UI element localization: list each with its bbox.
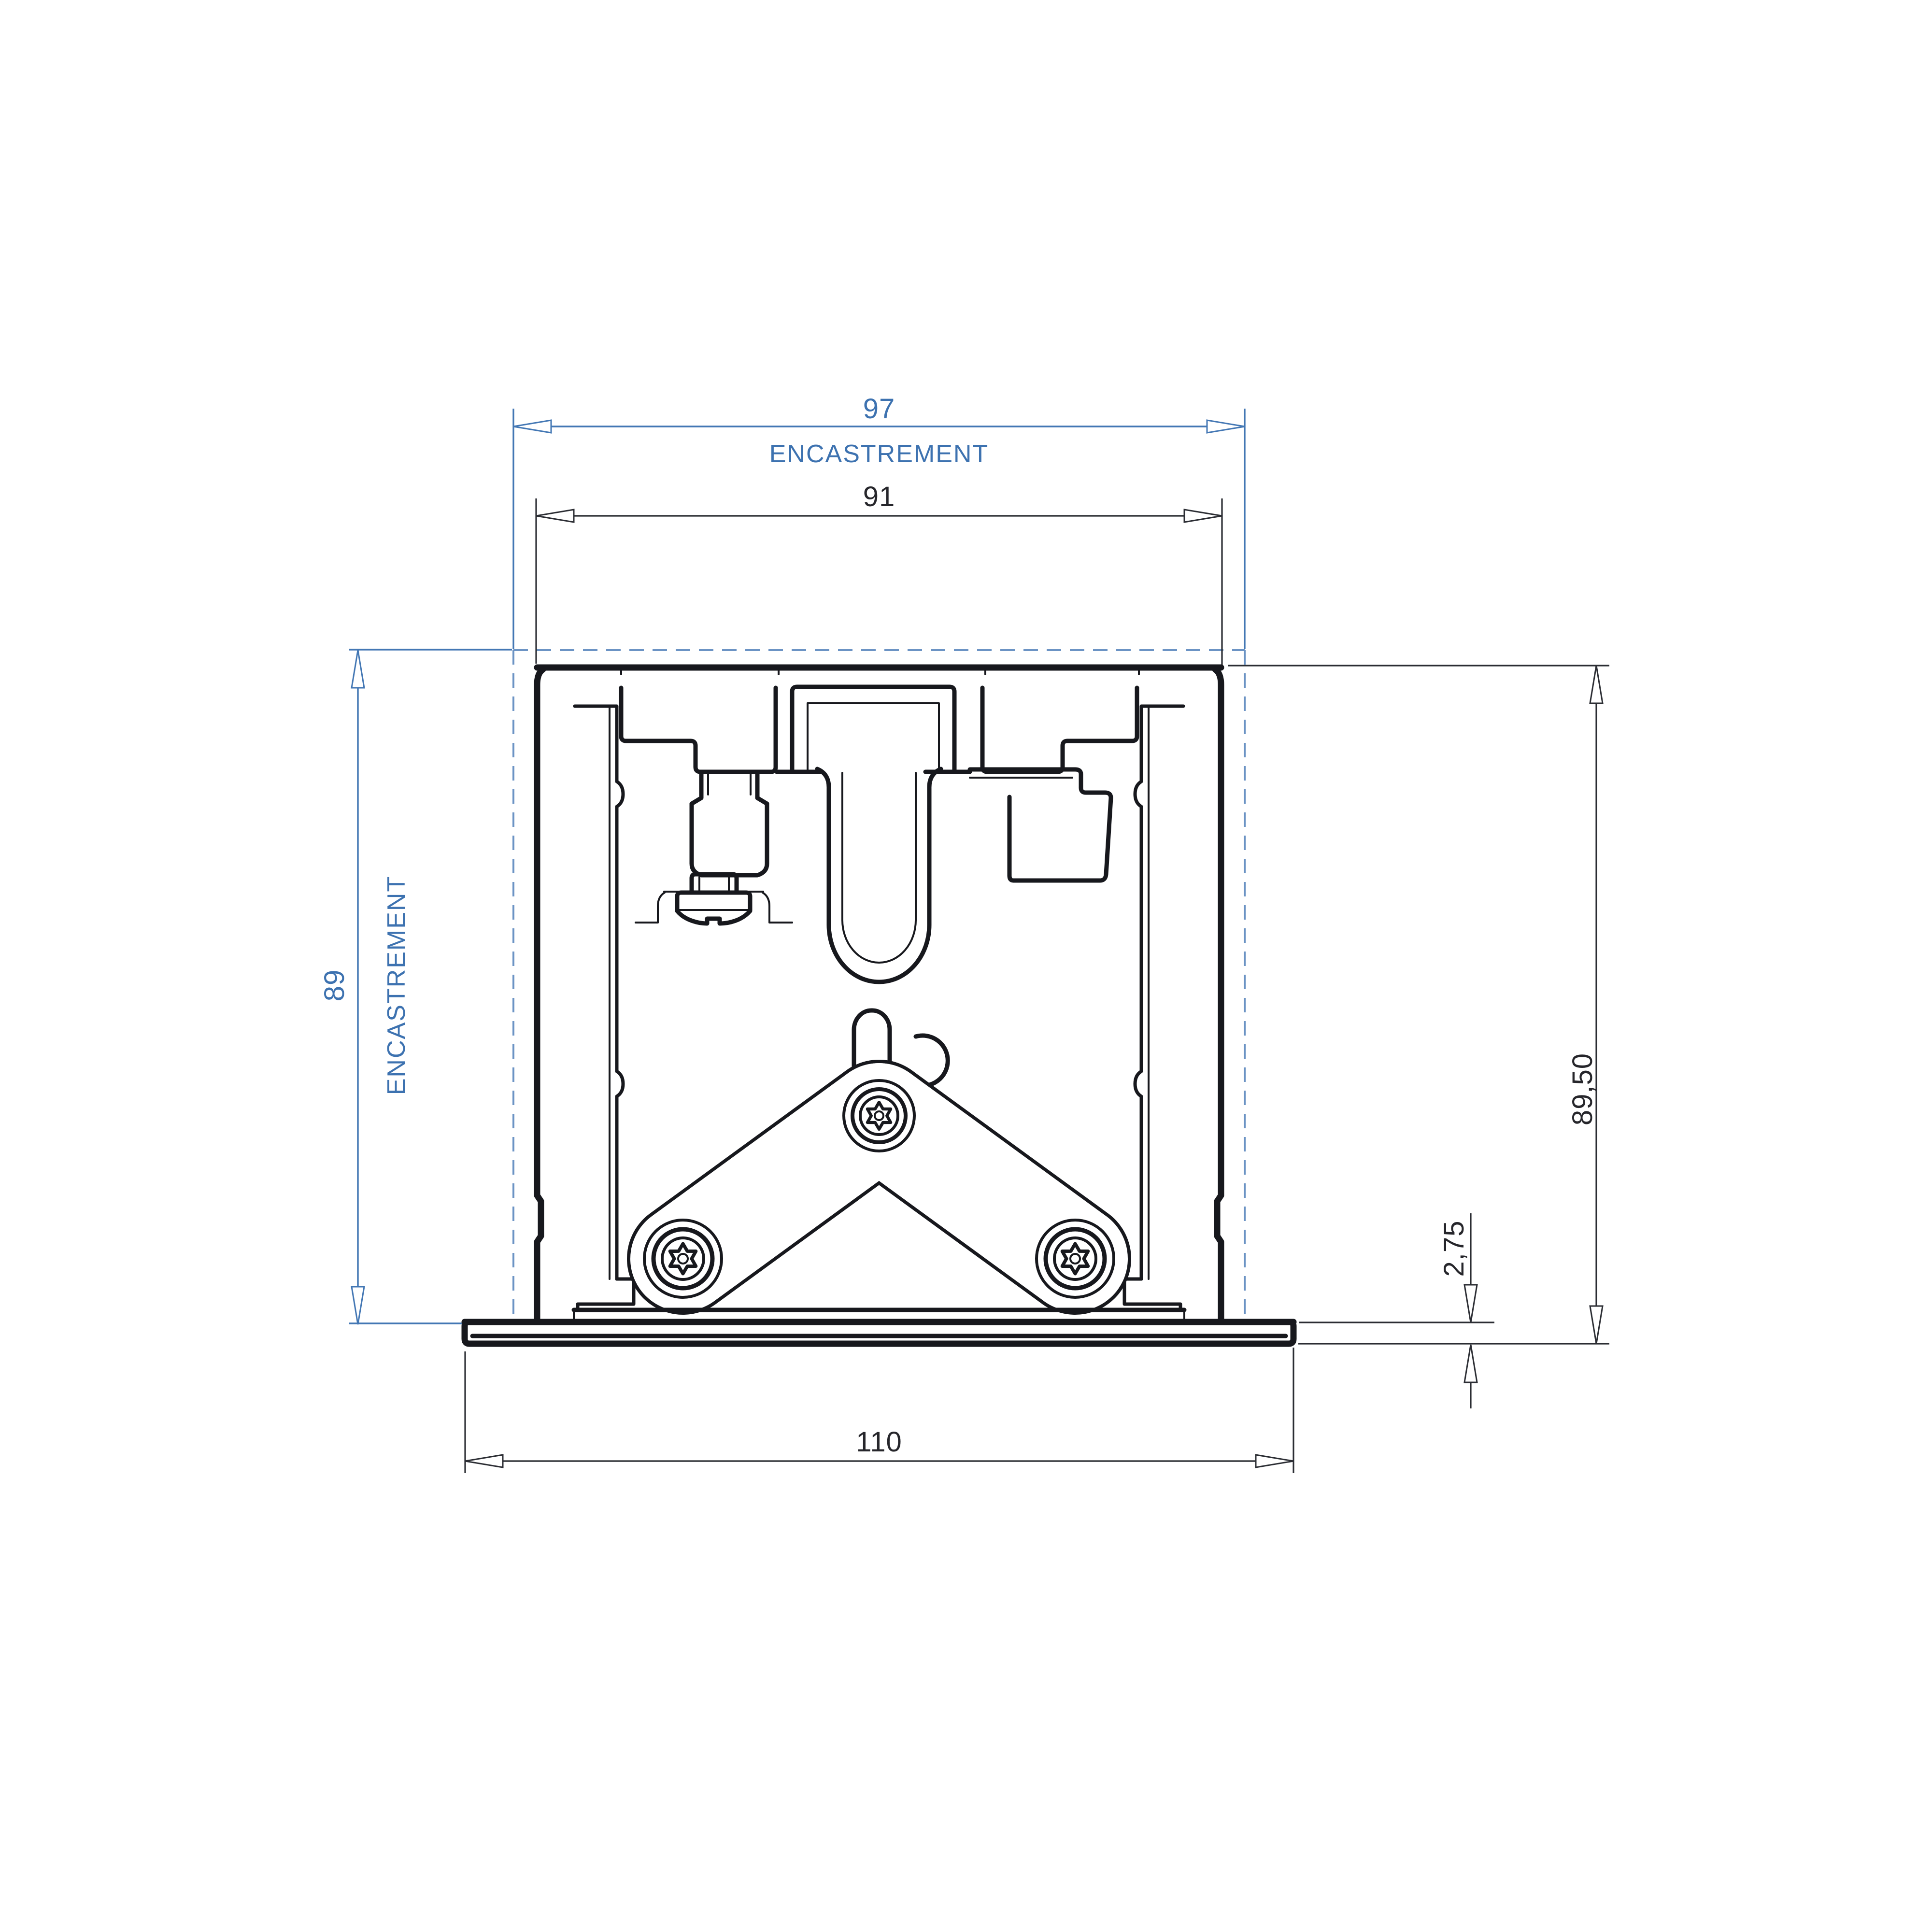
dim-89-label: ENCASTREMENT	[383, 876, 411, 1095]
dim-97-value: 97	[863, 393, 895, 425]
dimension-recess-width: 97 ENCASTREMENT	[513, 393, 1245, 649]
profile-top-castellation	[621, 687, 1137, 772]
dim-110-value: 110	[856, 1426, 902, 1458]
profile-mid-structure	[692, 769, 1111, 982]
dimension-overall-height: 89,50	[1228, 666, 1609, 1344]
dimension-flange-thickness: 2,75	[1299, 1213, 1494, 1408]
dim-89-value: 89	[319, 969, 350, 1002]
bottom-trim-flange	[465, 1310, 1293, 1344]
chevron-bracket	[683, 1116, 1075, 1259]
torx-screw-center	[844, 1080, 914, 1151]
recess-boundary-dashed-lines	[513, 650, 1245, 1321]
dim-2-75-value: 2,75	[1438, 1221, 1470, 1277]
dim-89-50-value: 89,50	[1567, 1053, 1598, 1125]
clamp-screw	[636, 874, 792, 923]
dimension-overall-width: 110	[465, 1348, 1293, 1473]
dim-97-label: ENCASTREMENT	[769, 440, 989, 468]
dimension-inner-width: 91	[536, 481, 1222, 666]
dimension-recess-depth: 89 ENCASTREMENT	[319, 650, 512, 1324]
dim-91-value: 91	[863, 481, 895, 512]
technical-drawing: 97 ENCASTREMENT 91 89 ENCASTREMENT 89,50	[0, 0, 1932, 1932]
